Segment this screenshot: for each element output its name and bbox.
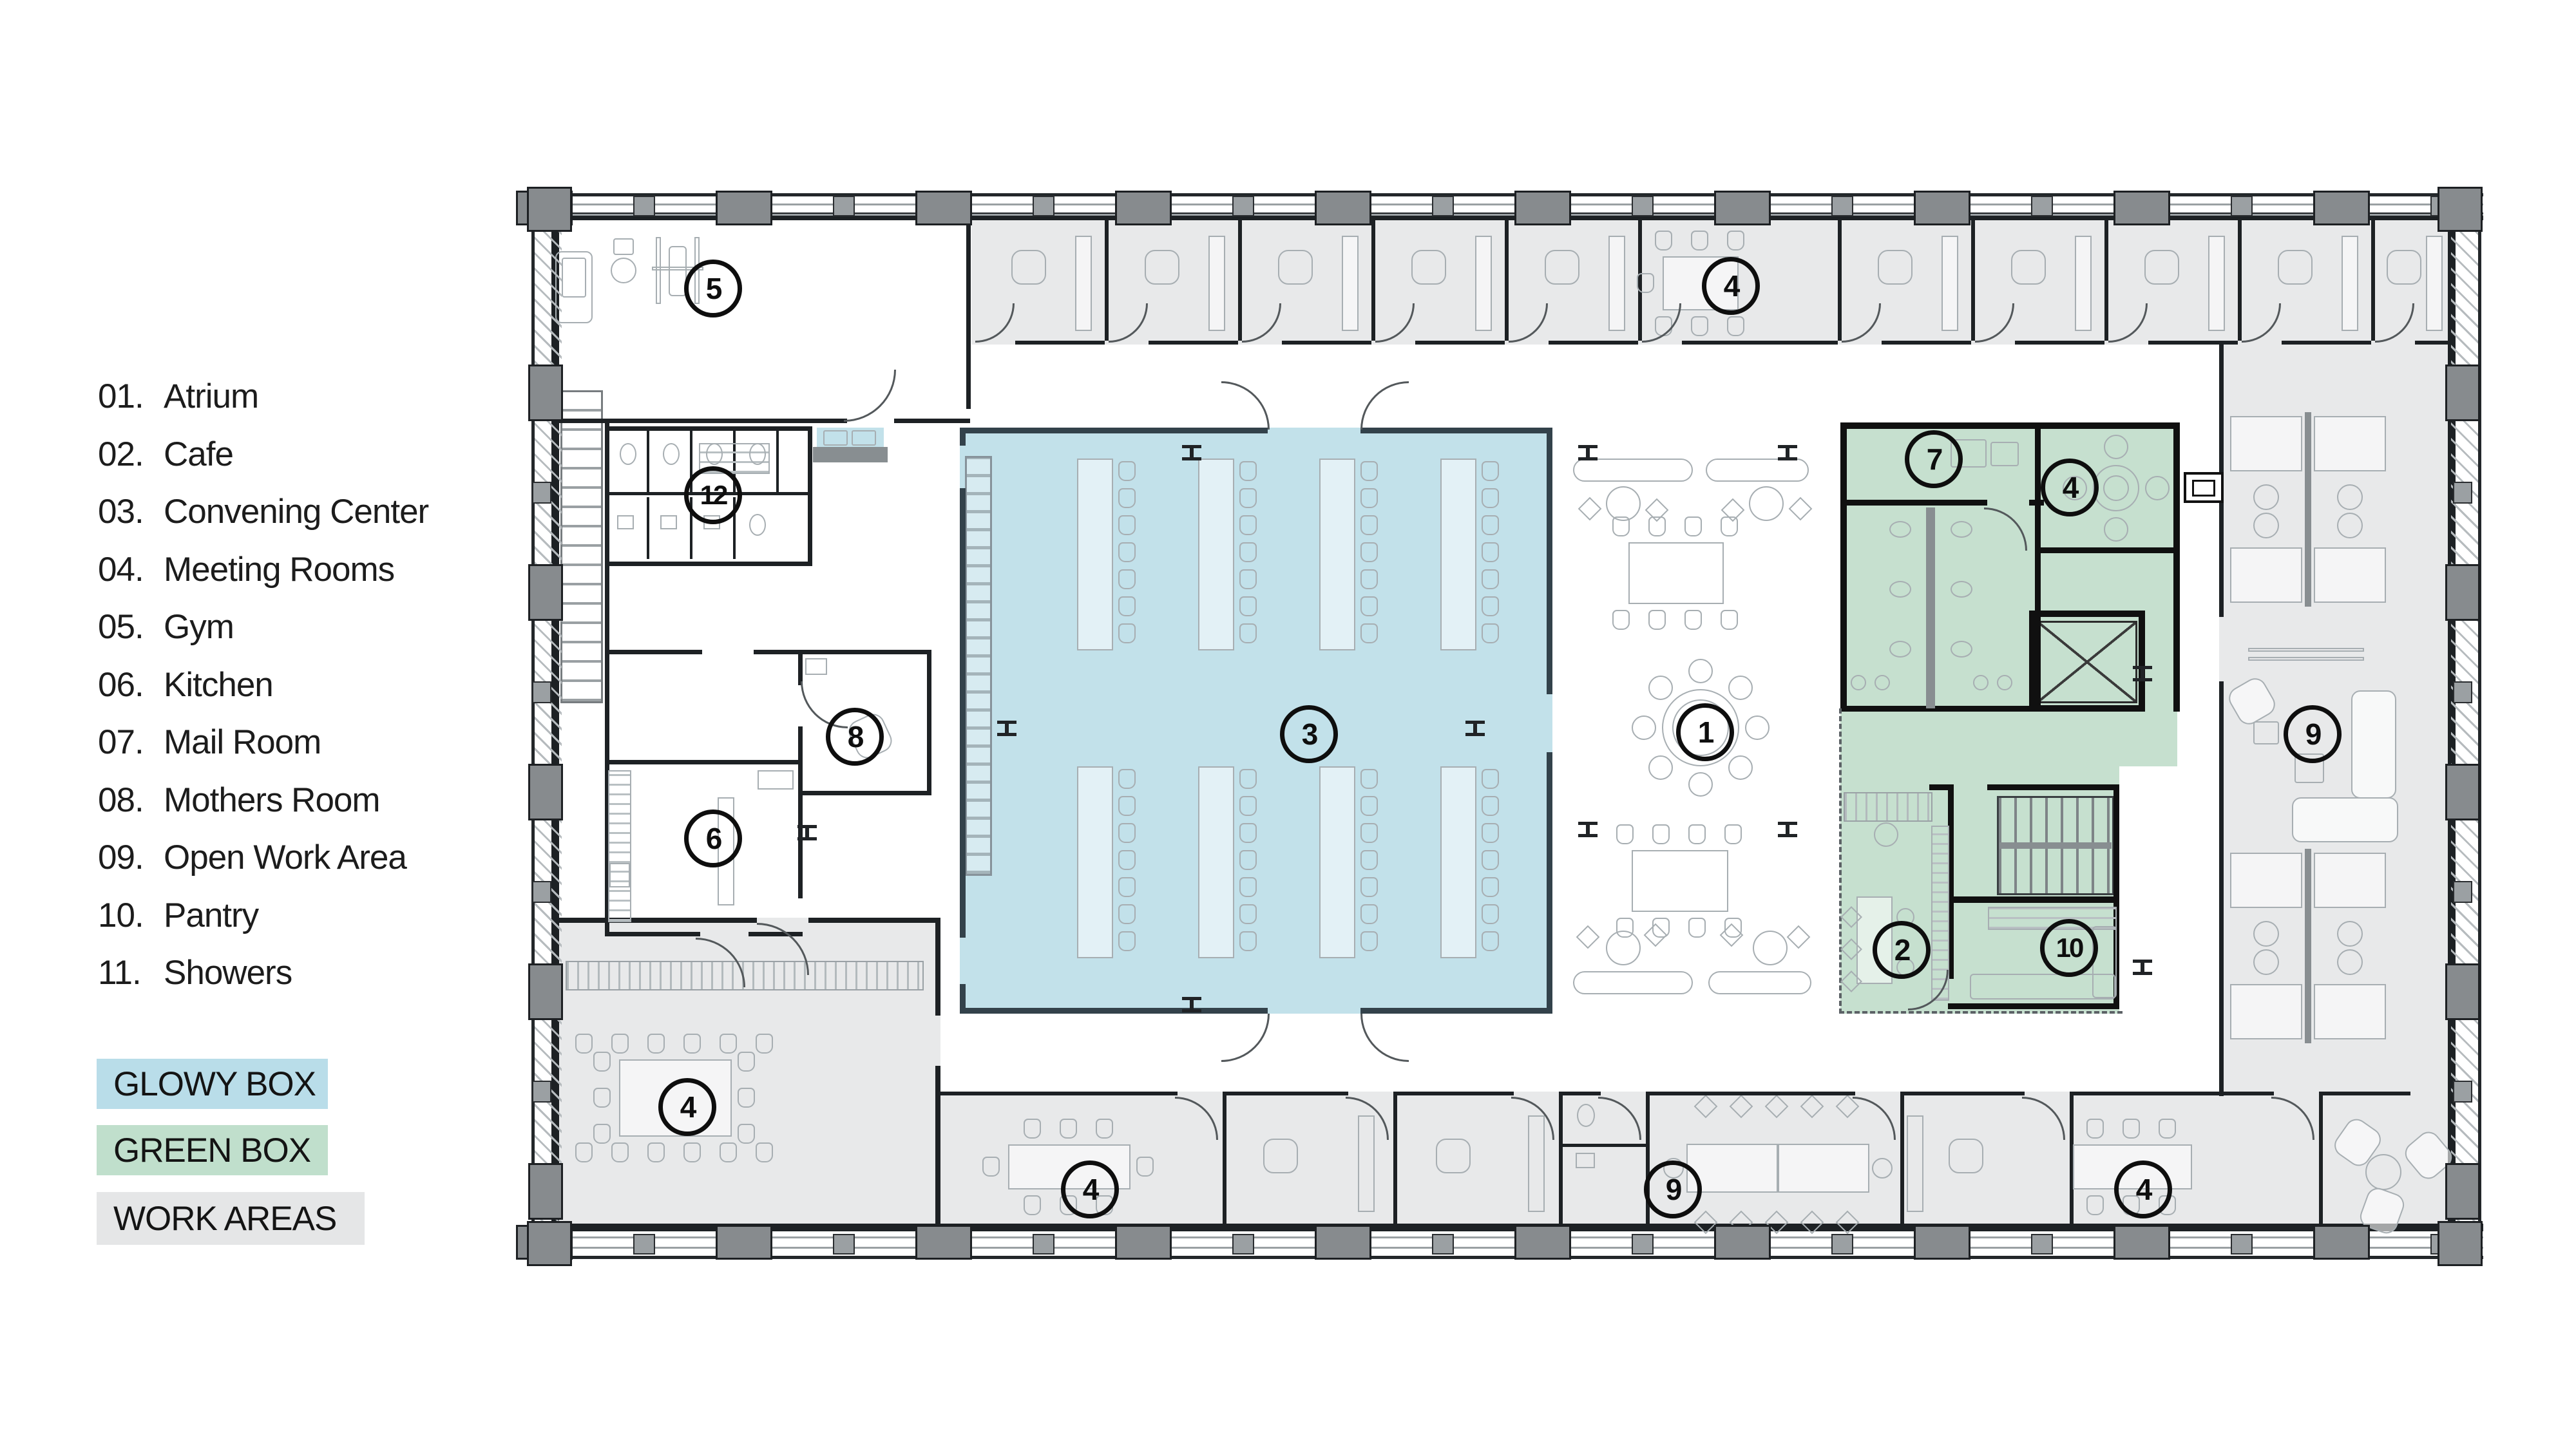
- column-ibeam-icon: [1578, 834, 1598, 837]
- floor-plan-page: 01.Atrium02.Cafe03.Convening Center04.Me…: [0, 0, 2576, 1449]
- wall: [2035, 547, 2177, 553]
- office-chair: [1411, 250, 1446, 285]
- column-pier: [2445, 764, 2480, 820]
- chair: [1482, 904, 1499, 924]
- column-pier: [528, 1163, 563, 1220]
- wall: [940, 1092, 1178, 1095]
- column-pier: [2445, 564, 2480, 621]
- column-pier: [1714, 191, 1771, 225]
- task-chair: [2253, 513, 2279, 538]
- legend-room-item: 01.Atrium: [98, 377, 258, 416]
- wall: [1547, 428, 1552, 694]
- legend-room-name: Mothers Room: [164, 781, 380, 819]
- furniture-round: [1851, 675, 1866, 690]
- chair: [1118, 515, 1136, 535]
- chair: [1688, 772, 1713, 797]
- room-marker-6: 6: [684, 810, 742, 867]
- mullion: [633, 1234, 655, 1255]
- mullion: [1432, 196, 1454, 216]
- wall: [647, 497, 649, 559]
- wall: [2319, 1095, 2323, 1224]
- chair: [1482, 931, 1499, 951]
- wall: [1840, 706, 2041, 712]
- chair: [1652, 824, 1670, 844]
- fixture: [620, 443, 636, 465]
- mullion: [532, 881, 551, 903]
- column-pier: [915, 191, 972, 225]
- legend-room-name: Pantry: [164, 896, 258, 934]
- fixture: [1951, 581, 1972, 598]
- chair: [1360, 931, 1378, 951]
- task-chair: [2253, 921, 2279, 947]
- legend-room-number: 05.: [98, 607, 164, 647]
- chair: [1482, 623, 1499, 643]
- chair: [1360, 515, 1378, 535]
- chair: [1118, 904, 1136, 924]
- shelving: [608, 770, 631, 922]
- chair: [1648, 610, 1666, 630]
- chair: [1118, 796, 1136, 816]
- training-table: [1440, 459, 1476, 650]
- chair: [1239, 877, 1257, 897]
- chair: [1482, 515, 1499, 535]
- chair: [1360, 904, 1378, 924]
- fixture: [663, 443, 680, 465]
- furniture-round: [1874, 822, 1898, 847]
- chair: [1745, 715, 1770, 740]
- chair: [1728, 676, 1753, 700]
- chair: [2145, 476, 2170, 500]
- chair: [1118, 596, 1136, 616]
- wall: [2070, 1092, 2274, 1095]
- column-pier: [1514, 1225, 1571, 1260]
- furniture: [1573, 459, 1693, 482]
- office-desk: [1475, 236, 1492, 331]
- wall: [1559, 1095, 1563, 1224]
- corner-pier: [527, 1221, 572, 1266]
- column-pier: [1315, 191, 1371, 225]
- chair: [575, 1034, 593, 1054]
- chair: [982, 1157, 1000, 1177]
- chair: [593, 1088, 611, 1108]
- furniture: [1706, 459, 1809, 482]
- column-pier: [2445, 1163, 2480, 1220]
- furniture-round: [611, 258, 636, 283]
- wall: [1900, 1092, 2025, 1095]
- chair: [1118, 542, 1136, 562]
- office-desk: [2075, 236, 2092, 331]
- training-table: [1198, 766, 1234, 958]
- chair: [1616, 824, 1634, 844]
- chair: [1724, 824, 1742, 844]
- column-pier: [2445, 963, 2480, 1020]
- chair: [1688, 918, 1706, 938]
- furniture: [660, 515, 677, 529]
- legend-room-name: Open Work Area: [164, 838, 406, 876]
- wall: [605, 650, 702, 654]
- conference-table: [1632, 850, 1728, 912]
- chair: [2086, 1195, 2104, 1215]
- door-arc: [1221, 381, 1270, 430]
- chair: [1632, 715, 1656, 740]
- column-pier: [528, 963, 563, 1020]
- wall: [966, 220, 971, 409]
- chair: [2086, 1119, 2104, 1139]
- wall: [935, 1066, 940, 1227]
- chair: [1118, 823, 1136, 843]
- chair: [1482, 542, 1499, 562]
- wall: [2415, 341, 2456, 345]
- room-marker-3: 3: [1280, 705, 1338, 763]
- office-chair: [2387, 250, 2421, 285]
- chair: [720, 1142, 737, 1162]
- chair: [1118, 623, 1136, 643]
- column-ibeam-icon: [1578, 457, 1598, 460]
- task-chair: [2337, 921, 2363, 947]
- furniture: [656, 237, 661, 304]
- legend-swatch-green-box: GREEN BOX: [97, 1125, 328, 1175]
- legend-room-name: Mail Room: [164, 723, 321, 761]
- mullion: [1632, 1234, 1654, 1255]
- chair: [1648, 676, 1673, 700]
- chair: [1239, 769, 1257, 789]
- mullion: [532, 482, 551, 504]
- task-chair: [2253, 949, 2279, 975]
- chair: [1789, 497, 1813, 521]
- chair: [1360, 542, 1378, 562]
- chair: [1360, 877, 1378, 897]
- office-chair: [1011, 250, 1046, 285]
- chair: [1239, 596, 1257, 616]
- office-chair: [1436, 1139, 1471, 1173]
- chair: [1482, 569, 1499, 589]
- training-table: [1198, 459, 1234, 650]
- mullion: [1033, 196, 1054, 216]
- office-desk: [2426, 236, 2443, 331]
- wall: [1840, 422, 2177, 429]
- legend-room-item: 06.Kitchen: [98, 665, 273, 705]
- chair: [1118, 877, 1136, 897]
- chair: [647, 1034, 665, 1054]
- chair: [1655, 231, 1672, 251]
- wall: [935, 918, 940, 1016]
- chair: [1787, 925, 1811, 949]
- room-marker-12: 12: [684, 466, 742, 524]
- chair: [1684, 516, 1702, 536]
- column-pier: [716, 1225, 772, 1260]
- furniture: [805, 658, 827, 675]
- corner-pier: [527, 187, 572, 232]
- chair: [720, 1034, 737, 1054]
- furniture-round: [1606, 486, 1641, 521]
- mullion: [1033, 1234, 1054, 1255]
- training-table: [1077, 766, 1113, 958]
- mullion: [532, 1081, 551, 1103]
- legend-room-number: 08.: [98, 781, 164, 820]
- training-table: [1319, 459, 1355, 650]
- office-desk: [1075, 236, 1092, 331]
- legend-room-number: 01.: [98, 377, 164, 416]
- chair: [1360, 596, 1378, 616]
- office-chair: [1878, 250, 1913, 285]
- office-desk: [1608, 236, 1625, 331]
- desk: [2314, 853, 2386, 908]
- chair: [1691, 316, 1708, 336]
- wall: [605, 562, 812, 566]
- chair: [1118, 569, 1136, 589]
- chair: [738, 1124, 755, 1144]
- chair: [1612, 610, 1630, 630]
- room-marker-10: 10: [2040, 919, 2098, 977]
- furniture: [1708, 971, 1811, 994]
- chair: [756, 1034, 773, 1054]
- legend-swatch-work-areas: WORK AREAS: [97, 1192, 365, 1245]
- wall: [2035, 422, 2041, 712]
- chair: [1118, 488, 1136, 508]
- chair: [1360, 850, 1378, 870]
- column-pier: [1315, 1225, 1371, 1260]
- chair: [1239, 569, 1257, 589]
- chair: [1360, 488, 1378, 508]
- office-desk: [1942, 236, 1958, 331]
- furniture: [2248, 657, 2364, 661]
- wall: [1393, 1092, 1514, 1095]
- wall: [2029, 705, 2145, 712]
- column-ibeam-icon: [2133, 972, 2152, 975]
- room-marker-4: 4: [1061, 1160, 1119, 1218]
- chair: [1482, 850, 1499, 870]
- desk: [2230, 547, 2302, 603]
- mullion: [2031, 1234, 2053, 1255]
- chair: [593, 1052, 611, 1072]
- legend-room-name: Gym: [164, 608, 234, 646]
- wall: [605, 932, 700, 936]
- room-marker-1: 1: [1676, 703, 1734, 761]
- mullion: [2453, 881, 2472, 903]
- wall: [813, 447, 888, 462]
- desk-partition: [2305, 412, 2311, 607]
- sofa: [2292, 797, 2398, 842]
- wall: [647, 430, 649, 492]
- room-marker-9: 9: [2284, 705, 2342, 763]
- wall: [1393, 1095, 1397, 1224]
- wall: [2319, 1092, 2410, 1095]
- office-chair: [2144, 250, 2179, 285]
- mullion: [1831, 1234, 1853, 1255]
- furniture: [609, 863, 630, 887]
- chair: [1360, 823, 1378, 843]
- column-pier: [2445, 365, 2480, 421]
- facade-top: [531, 193, 2483, 222]
- legend-room-item: 11.Showers: [98, 953, 292, 992]
- furniture-round: [2365, 1154, 2401, 1190]
- column-pier: [1714, 1225, 1771, 1260]
- legend-room-name: Showers: [164, 954, 292, 992]
- door-arc: [1360, 1014, 1409, 1062]
- column-ibeam-icon: [1465, 733, 1485, 736]
- wall: [2015, 341, 2104, 345]
- column-ibeam-icon: [997, 733, 1016, 736]
- office-desk: [1208, 236, 1225, 331]
- furniture-round: [1753, 931, 1788, 965]
- desk: [2314, 416, 2386, 471]
- wall: [605, 426, 812, 431]
- legend-room-name: Atrium: [164, 377, 258, 415]
- legend-room-number: 04.: [98, 550, 164, 589]
- column-pier: [2113, 1225, 2170, 1260]
- chair: [1721, 516, 1738, 536]
- furniture: [617, 515, 634, 529]
- room-marker-4: 4: [2114, 1160, 2172, 1218]
- chair: [1482, 488, 1499, 508]
- furniture-round: [1749, 486, 1784, 521]
- wall: [1948, 1003, 2119, 1009]
- conference-table: [1628, 542, 1724, 604]
- desk: [2314, 547, 2386, 603]
- column-pier: [1514, 191, 1571, 225]
- wall: [1926, 507, 1935, 708]
- chair: [1482, 461, 1499, 481]
- wall: [2029, 611, 2036, 712]
- room-marker-8: 8: [826, 708, 884, 766]
- green-box-dashed-boundary: [1839, 708, 1842, 1014]
- chair: [1727, 231, 1744, 251]
- furniture-round: [1872, 1158, 1893, 1179]
- mullion: [2231, 1234, 2253, 1255]
- office-chair: [1263, 1139, 1298, 1173]
- legend-room-item: 04.Meeting Rooms: [98, 550, 394, 589]
- wall: [798, 760, 803, 898]
- training-table: [1077, 459, 1113, 650]
- wall: [1559, 1144, 1646, 1147]
- training-table: [1319, 766, 1355, 958]
- wall: [1223, 1092, 1348, 1095]
- wall: [1840, 500, 1987, 506]
- chair: [1096, 1119, 1113, 1139]
- chair: [1239, 796, 1257, 816]
- fixture: [1577, 1104, 1595, 1127]
- wall: [798, 791, 931, 795]
- chair: [2123, 1119, 2140, 1139]
- door-arc: [1360, 381, 1409, 430]
- fixture: [1889, 641, 1911, 658]
- column-pier: [528, 764, 563, 820]
- legend-room-number: 11.: [98, 953, 164, 992]
- furniture: [613, 238, 634, 255]
- furniture-round: [1997, 675, 2012, 690]
- chair: [756, 1142, 773, 1162]
- wall: [2029, 611, 2145, 617]
- chair: [1060, 1119, 1077, 1139]
- desk: [2230, 416, 2302, 471]
- chair: [1482, 877, 1499, 897]
- wall: [1360, 1008, 1552, 1014]
- furniture: [562, 258, 586, 298]
- chair: [1239, 542, 1257, 562]
- room-marker-4: 4: [2041, 459, 2099, 516]
- chair: [1648, 755, 1673, 780]
- wall: [2148, 341, 2238, 345]
- legend-room-number: 10.: [98, 896, 164, 935]
- office-desk: [1342, 236, 1359, 331]
- task-chair: [2337, 949, 2363, 975]
- wall: [559, 918, 757, 923]
- chair: [575, 1142, 593, 1162]
- furniture: [823, 430, 848, 446]
- column-pier: [1115, 191, 1172, 225]
- column-pier: [528, 564, 563, 621]
- furniture: [758, 770, 794, 790]
- wall: [1415, 341, 1505, 345]
- wall: [1840, 422, 1847, 712]
- chair: [1239, 623, 1257, 643]
- fixture: [1889, 581, 1911, 598]
- wall: [894, 419, 970, 423]
- chair: [1721, 610, 1738, 630]
- chair: [647, 1142, 665, 1162]
- wall: [1149, 341, 1238, 345]
- furniture: [1907, 1115, 1923, 1212]
- wall: [1682, 341, 1838, 345]
- room-marker-4: 4: [1702, 257, 1760, 315]
- office-chair: [1145, 250, 1179, 285]
- task-chair: [2337, 484, 2363, 510]
- task-chair: [2337, 513, 2363, 538]
- corner-pier: [2438, 1221, 2483, 1266]
- mullion: [1831, 196, 1853, 216]
- legend-room-number: 03.: [98, 492, 164, 531]
- wall: [1948, 896, 2119, 903]
- fixture: [749, 514, 766, 536]
- chair: [1239, 931, 1257, 951]
- counter: [1844, 792, 1932, 822]
- column-pier: [716, 191, 772, 225]
- wall: [808, 426, 812, 566]
- room-marker-7: 7: [1905, 430, 1963, 488]
- furniture-round: [1973, 675, 1989, 690]
- chair: [2159, 1119, 2176, 1139]
- legend-room-item: 08.Mothers Room: [98, 781, 380, 820]
- wall: [1549, 341, 1638, 345]
- chair: [1482, 769, 1499, 789]
- fixture: [1951, 641, 1972, 658]
- column-ibeam-icon: [1182, 1009, 1201, 1012]
- stage-strip: [965, 456, 992, 876]
- chair: [1360, 796, 1378, 816]
- mullion: [2453, 482, 2472, 504]
- mullion: [532, 681, 551, 703]
- furniture: [2248, 648, 2364, 652]
- chair: [1239, 823, 1257, 843]
- corner-pier: [2438, 187, 2483, 232]
- fixture: [1889, 521, 1911, 538]
- wall: [1282, 341, 1371, 345]
- chair: [1239, 461, 1257, 481]
- room-marker-2: 2: [1873, 921, 1931, 979]
- chair: [1239, 488, 1257, 508]
- wall: [2282, 341, 2371, 345]
- column-pier: [1914, 1225, 1970, 1260]
- chair: [1482, 796, 1499, 816]
- wall-panel-icon: [2184, 472, 2224, 503]
- fixture: [749, 443, 766, 465]
- wall: [1559, 1092, 1601, 1095]
- wall: [960, 428, 966, 446]
- furniture: [2253, 721, 2279, 744]
- wall: [559, 419, 847, 423]
- chair: [1684, 610, 1702, 630]
- chair: [1576, 925, 1600, 949]
